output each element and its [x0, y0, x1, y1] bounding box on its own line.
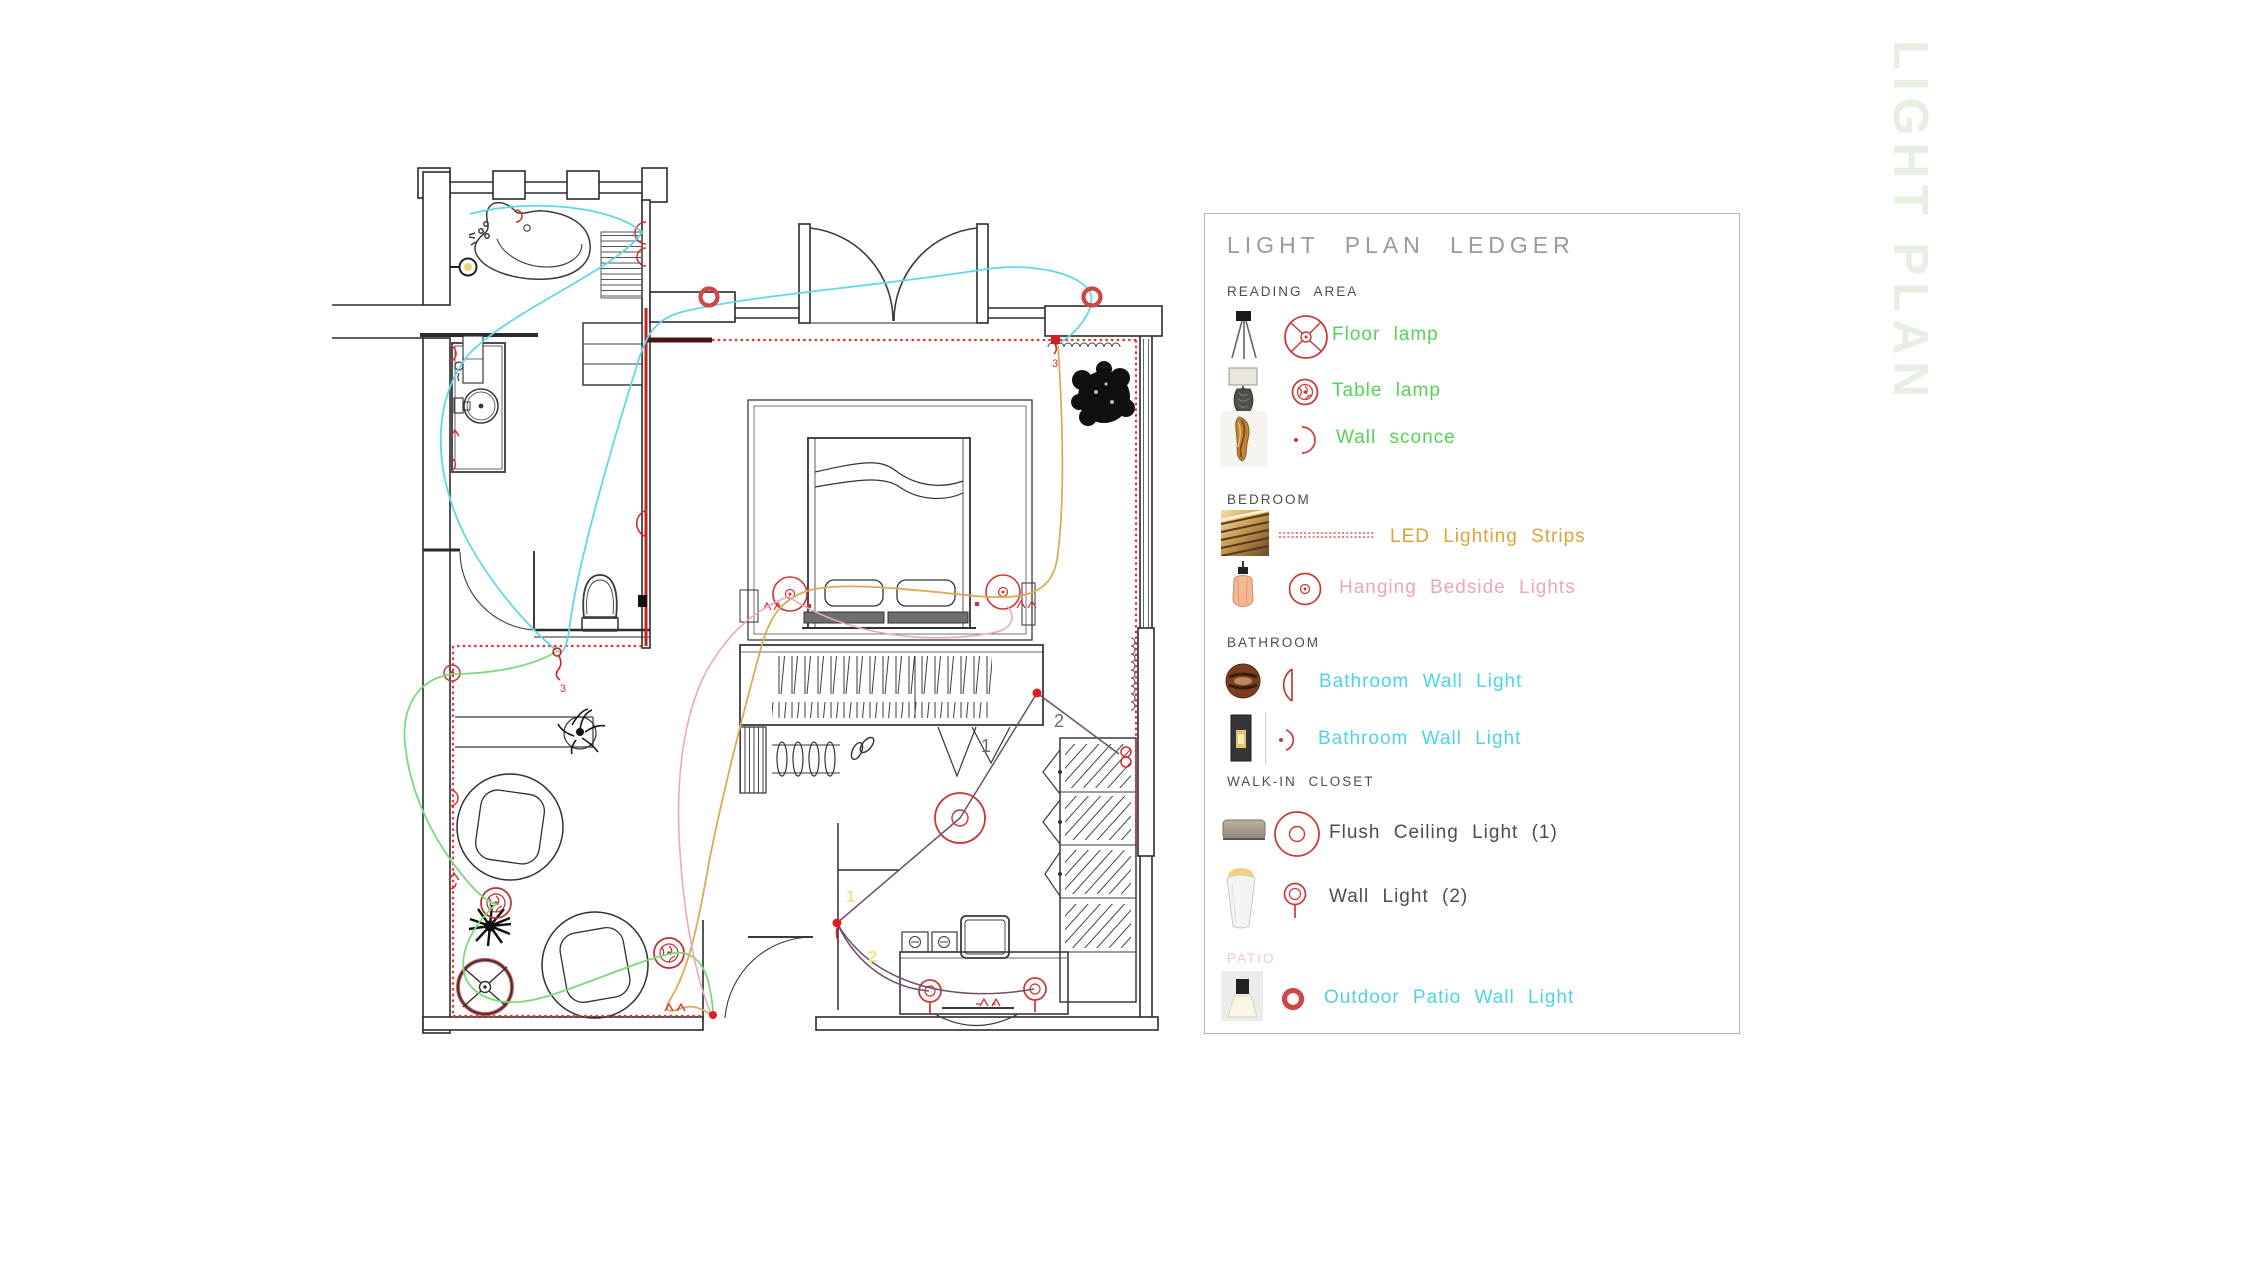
wardrobe: [740, 645, 1043, 725]
closet-wall-light-right: [1024, 978, 1046, 1012]
bathtub: [469, 203, 590, 280]
section-patio: PATIO: [1227, 951, 1276, 966]
closet-shelving: [1043, 738, 1136, 1002]
wall-light-2-symbol: [1275, 878, 1315, 929]
flush-ceiling-symbol: [1271, 808, 1323, 865]
rug: [748, 400, 1032, 640]
cone-wall-light-icon: [1219, 864, 1263, 939]
led-strips-label: LED Lighting Strips: [1390, 526, 1586, 548]
pendant-light-icon: [1225, 561, 1261, 618]
outdoor-box-light-icon: [1221, 971, 1263, 1026]
legend-row-wall-sconce: Wall sconce: [1205, 411, 1739, 467]
desk: [900, 916, 1068, 1026]
closet-circuit-2-label: 2: [1054, 711, 1064, 731]
thumb-divider: [1265, 712, 1266, 764]
table-lamp-label: Table lamp: [1332, 380, 1441, 402]
dark-plant: [469, 905, 511, 946]
desk-circuit-2-label: 2: [868, 947, 877, 966]
outdoor-patio-label: Outdoor Patio Wall Light: [1324, 987, 1574, 1009]
legend-row-led-strips: LED Lighting Strips: [1205, 510, 1739, 566]
door-bottom: [725, 937, 813, 1018]
bathroom-wall-2-label: Bathroom Wall Light: [1318, 728, 1521, 750]
mirror-wall-light: [450, 259, 477, 276]
legend-row-floor-lamp: Floor lamp: [1205, 308, 1739, 364]
switch-circuit-label: 3: [560, 683, 566, 695]
round-wood-light-icon: [1221, 657, 1265, 710]
outdoor-patio-symbol: [1277, 983, 1309, 1020]
junction-door: [709, 1011, 717, 1019]
wire-cyan: [441, 206, 1092, 652]
watermark-title: LIGHT PLAN: [1882, 40, 1938, 440]
section-bedroom: BEDROOM: [1227, 492, 1311, 507]
section-walk-in-closet: WALK-IN CLOSET: [1227, 774, 1375, 789]
tube-wall-light-icon: [1227, 712, 1257, 769]
closet-circuit-1-label: 1: [981, 736, 991, 756]
floor-lamp-icon: [1221, 308, 1265, 367]
floor-plan-drawing: 1 2 1 2 3 3: [320, 140, 1220, 1040]
hall-cabinets: [463, 323, 642, 385]
exterior-walls: [332, 168, 1162, 1033]
led-strip-icon: [1221, 510, 1269, 561]
led-circuit-label: 3: [1052, 358, 1058, 370]
wall-tick-marks: [665, 999, 1000, 1011]
desk-circuit-1-label: 1: [846, 887, 855, 906]
floor-plan: 1 2 1 2 3 3: [320, 140, 1220, 1040]
legend-row-outdoor-patio: Outdoor Patio Wall Light: [1205, 971, 1739, 1027]
floor-lamp-label: Floor lamp: [1332, 324, 1439, 346]
light-plan-page: 1 2 1 2 3 3 LIGHT PLAN LEDGER READING AR…: [0, 0, 2249, 1265]
light-plan-ledger: LIGHT PLAN LEDGER READING AREA BEDROOM B…: [1204, 213, 1740, 1034]
junction-closet: [1033, 689, 1042, 698]
bathroom-wall-2-symbol: [1269, 720, 1309, 765]
armchair-1: [457, 774, 563, 880]
legend-row-hanging-bedside: Hanging Bedside Lights: [1205, 561, 1739, 617]
hanging-bedside-symbol: [1281, 565, 1329, 618]
wall-sconce-label: Wall sconce: [1336, 427, 1456, 449]
section-bathroom: BATHROOM: [1227, 635, 1320, 650]
legend-row-bathroom-wall-2: Bathroom Wall Light: [1205, 712, 1739, 768]
console-table: [455, 717, 593, 747]
hanging-bedside-label: Hanging Bedside Lights: [1339, 577, 1576, 599]
legend-row-bathroom-wall-1: Bathroom Wall Light: [1205, 657, 1739, 713]
legend-row-flush-ceiling: Flush Ceiling Light (1): [1205, 806, 1739, 862]
closet-wall-light-left: [919, 980, 941, 1013]
flush-ceiling-label: Flush Ceiling Light (1): [1329, 822, 1558, 844]
radiator: [601, 232, 642, 298]
legend-row-wall-light-2: Wall Light (2): [1205, 864, 1739, 934]
led-strips-symbol: [1277, 528, 1377, 546]
wire-green: [405, 652, 713, 1015]
section-reading-area: READING AREA: [1227, 284, 1358, 299]
flush-drum-icon: [1221, 816, 1267, 851]
toilet: [582, 575, 618, 631]
bathroom-wall-1-symbol: [1267, 661, 1311, 714]
hanging-bedside-light-right: [986, 575, 1020, 609]
wall-stop: [638, 595, 647, 607]
floor-lamp-symbol: [1277, 310, 1335, 369]
window-glazing: [1144, 339, 1149, 628]
shoe-rack: [740, 727, 1010, 793]
floor-lamp-symbol-plan: [458, 960, 512, 1014]
wall-sconce-icon: [1221, 411, 1267, 472]
ledger-title: LIGHT PLAN LEDGER: [1227, 232, 1575, 259]
plant-tree: [1071, 361, 1135, 426]
wall-light-2-label: Wall Light (2): [1329, 886, 1468, 908]
bathroom-wall-1-label: Bathroom Wall Light: [1319, 671, 1522, 693]
wall-sconce-symbol: [1285, 419, 1325, 466]
bed: [740, 438, 1035, 628]
